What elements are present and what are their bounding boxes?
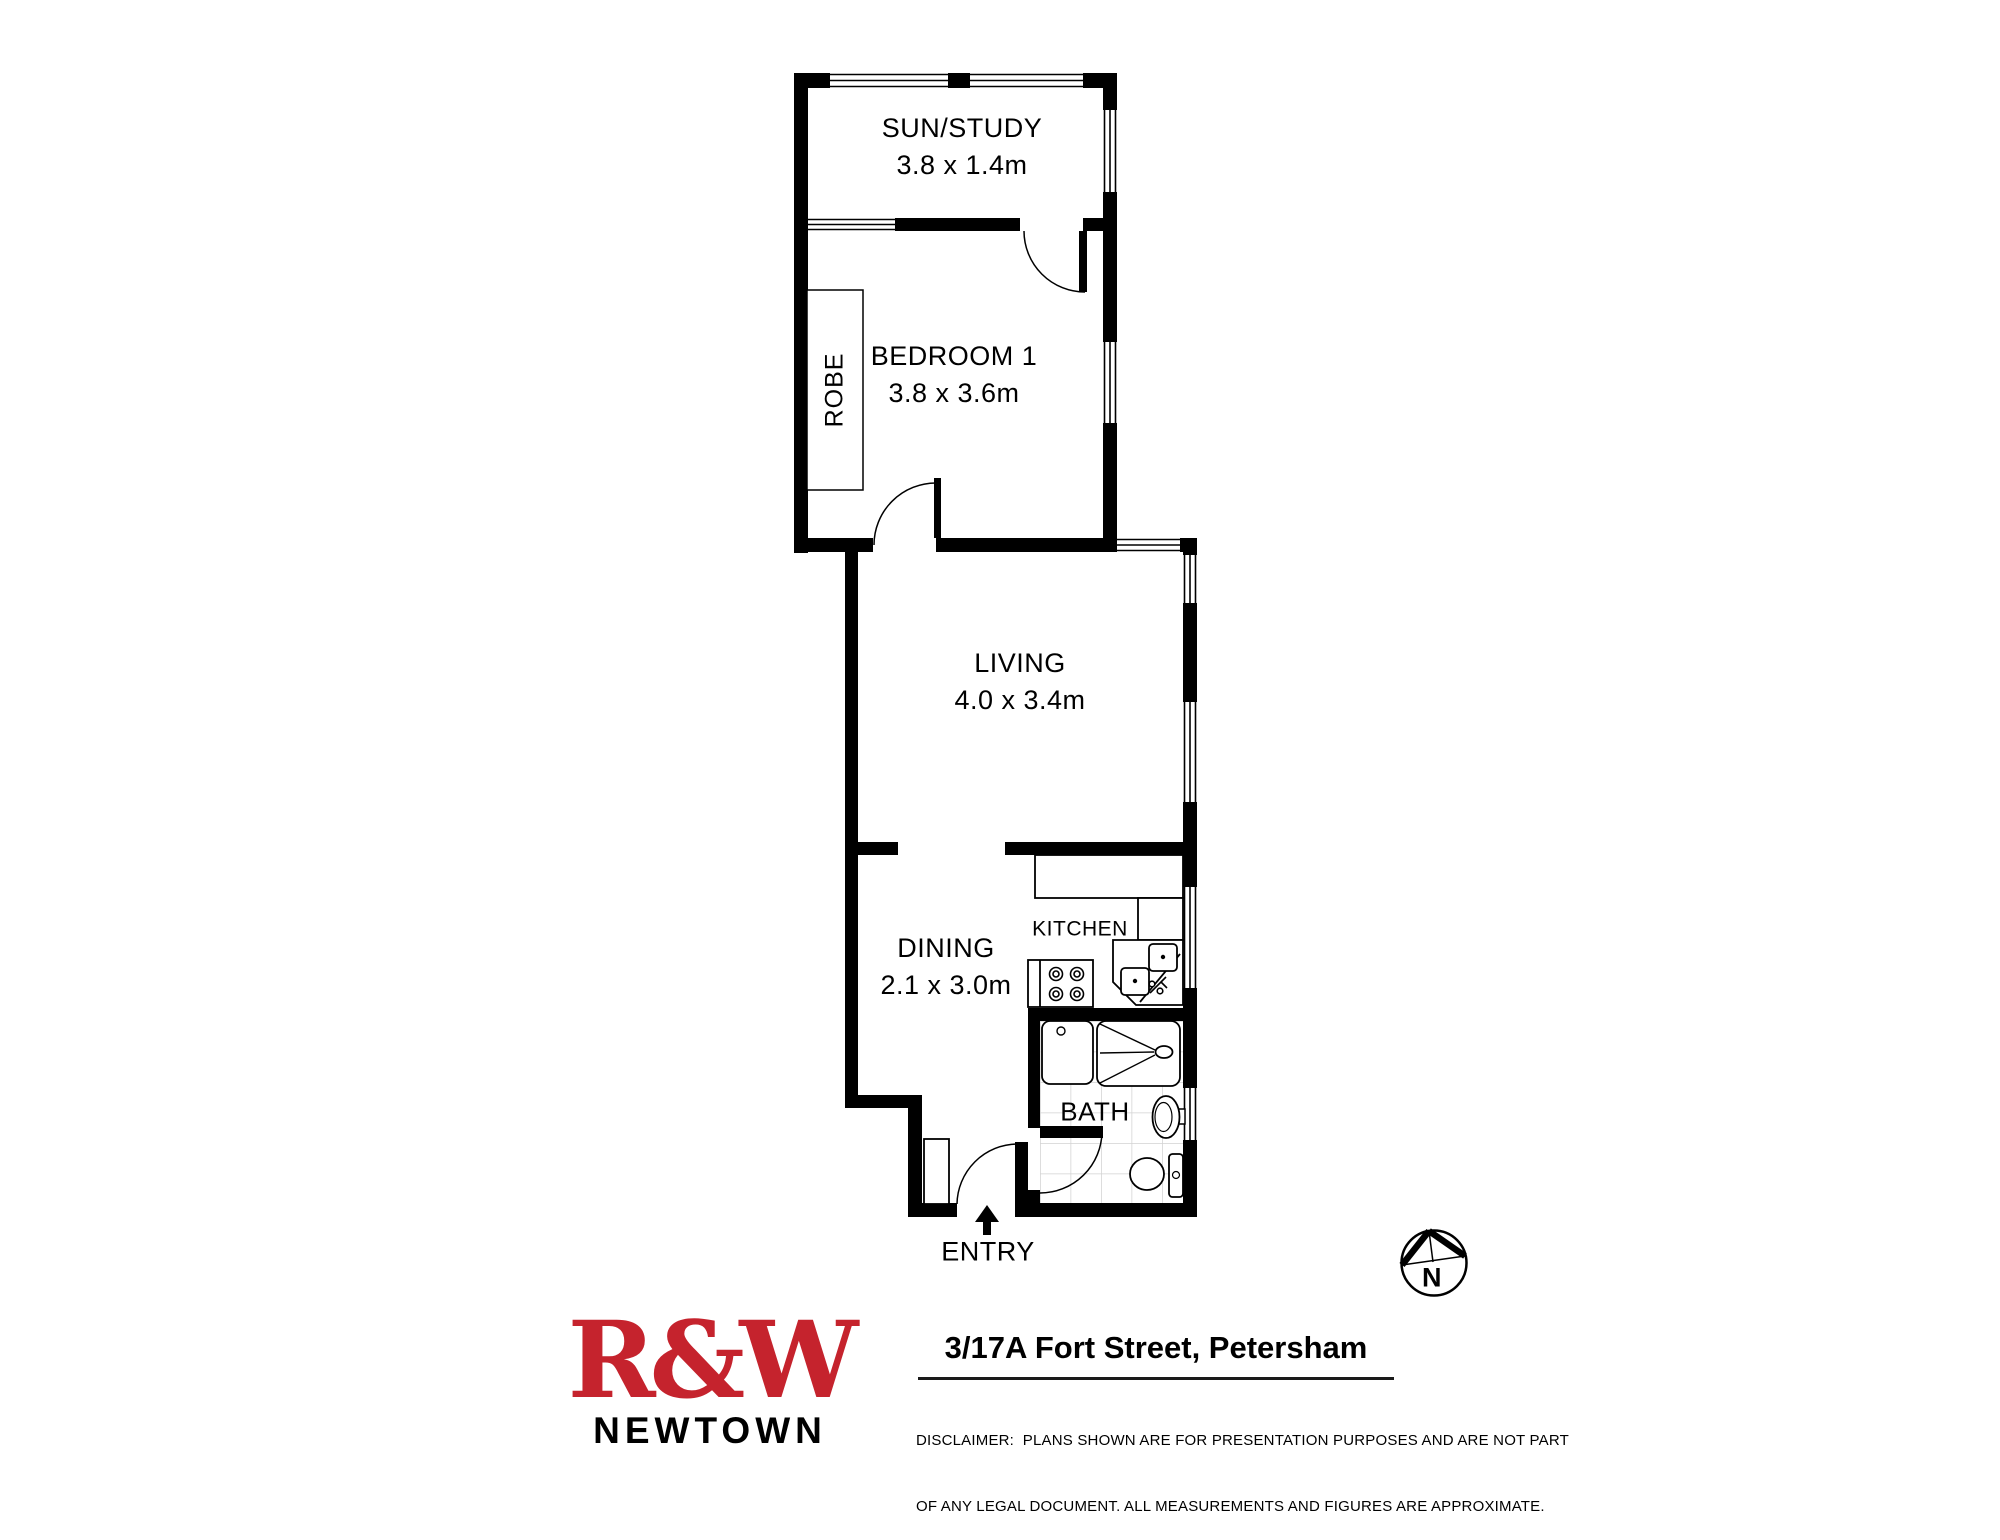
room-dimensions: 2.1 x 3.0m <box>880 967 1011 1004</box>
entry-door-arc <box>957 1144 1017 1204</box>
room-label-dining: DINING 2.1 x 3.0m <box>880 930 1011 1004</box>
window <box>1183 887 1197 988</box>
room-name: BEDROOM 1 <box>871 338 1038 375</box>
property-address: 3/17A Fort Street, Petersham <box>945 1330 1368 1366</box>
bedroom-door-arc <box>874 483 936 545</box>
room-label-bedroom-1: BEDROOM 1 3.8 x 3.6m <box>871 338 1038 412</box>
window <box>970 73 1083 88</box>
floorplan-canvas <box>0 0 2000 1500</box>
window <box>1183 555 1197 603</box>
room-name: SUN/STUDY <box>882 110 1043 147</box>
room-label-living: LIVING 4.0 x 3.4m <box>954 645 1085 719</box>
window <box>1103 110 1117 192</box>
entry-arrow-icon <box>975 1205 999 1235</box>
room-label-kitchen: KITCHEN <box>1032 911 1128 948</box>
footer-divider <box>918 1377 1394 1380</box>
sunstudy-door-arc <box>1024 231 1085 292</box>
stove-counter <box>1028 960 1093 1007</box>
room-dimensions: 4.0 x 3.4m <box>954 682 1085 719</box>
room-label-robe: ROBE <box>817 353 854 428</box>
agency-logo: R&W NEWTOWN <box>568 1312 853 1452</box>
kitchen-bench <box>1035 855 1183 898</box>
agency-branch: NEWTOWN <box>568 1410 853 1452</box>
room-name: LIVING <box>954 645 1085 682</box>
entry-door-leaf <box>924 1139 949 1204</box>
room-dimensions: 3.8 x 3.6m <box>871 375 1038 412</box>
window <box>1183 702 1197 802</box>
shower-icon <box>1097 1021 1180 1086</box>
floorplan-page: { "floorplan": { "rooms": [ { "id": "sun… <box>0 0 2000 1500</box>
laundry-tub-icon <box>1042 1021 1093 1084</box>
window <box>808 218 895 231</box>
room-label-bath: BATH <box>1060 1094 1129 1131</box>
agency-logo-text: R&W <box>568 1312 853 1408</box>
disclaimer-line: OF ANY LEGAL DOCUMENT. ALL MEASUREMENTS … <box>916 1496 1569 1518</box>
disclaimer-line: DISCLAIMER: PLANS SHOWN ARE FOR PRESENTA… <box>916 1430 1569 1452</box>
window <box>1117 538 1180 552</box>
compass-north-label: N <box>1422 1260 1442 1297</box>
window <box>1103 342 1117 423</box>
window <box>830 73 948 88</box>
room-dimensions: 3.8 x 1.4m <box>882 147 1043 184</box>
kitchen-counter-right <box>1138 898 1183 940</box>
room-label-sun-study: SUN/STUDY 3.8 x 1.4m <box>882 110 1043 184</box>
room-label-entry: ENTRY <box>941 1234 1035 1271</box>
disclaimer-text: DISCLAIMER: PLANS SHOWN ARE FOR PRESENTA… <box>916 1386 1569 1540</box>
room-name: DINING <box>880 930 1011 967</box>
